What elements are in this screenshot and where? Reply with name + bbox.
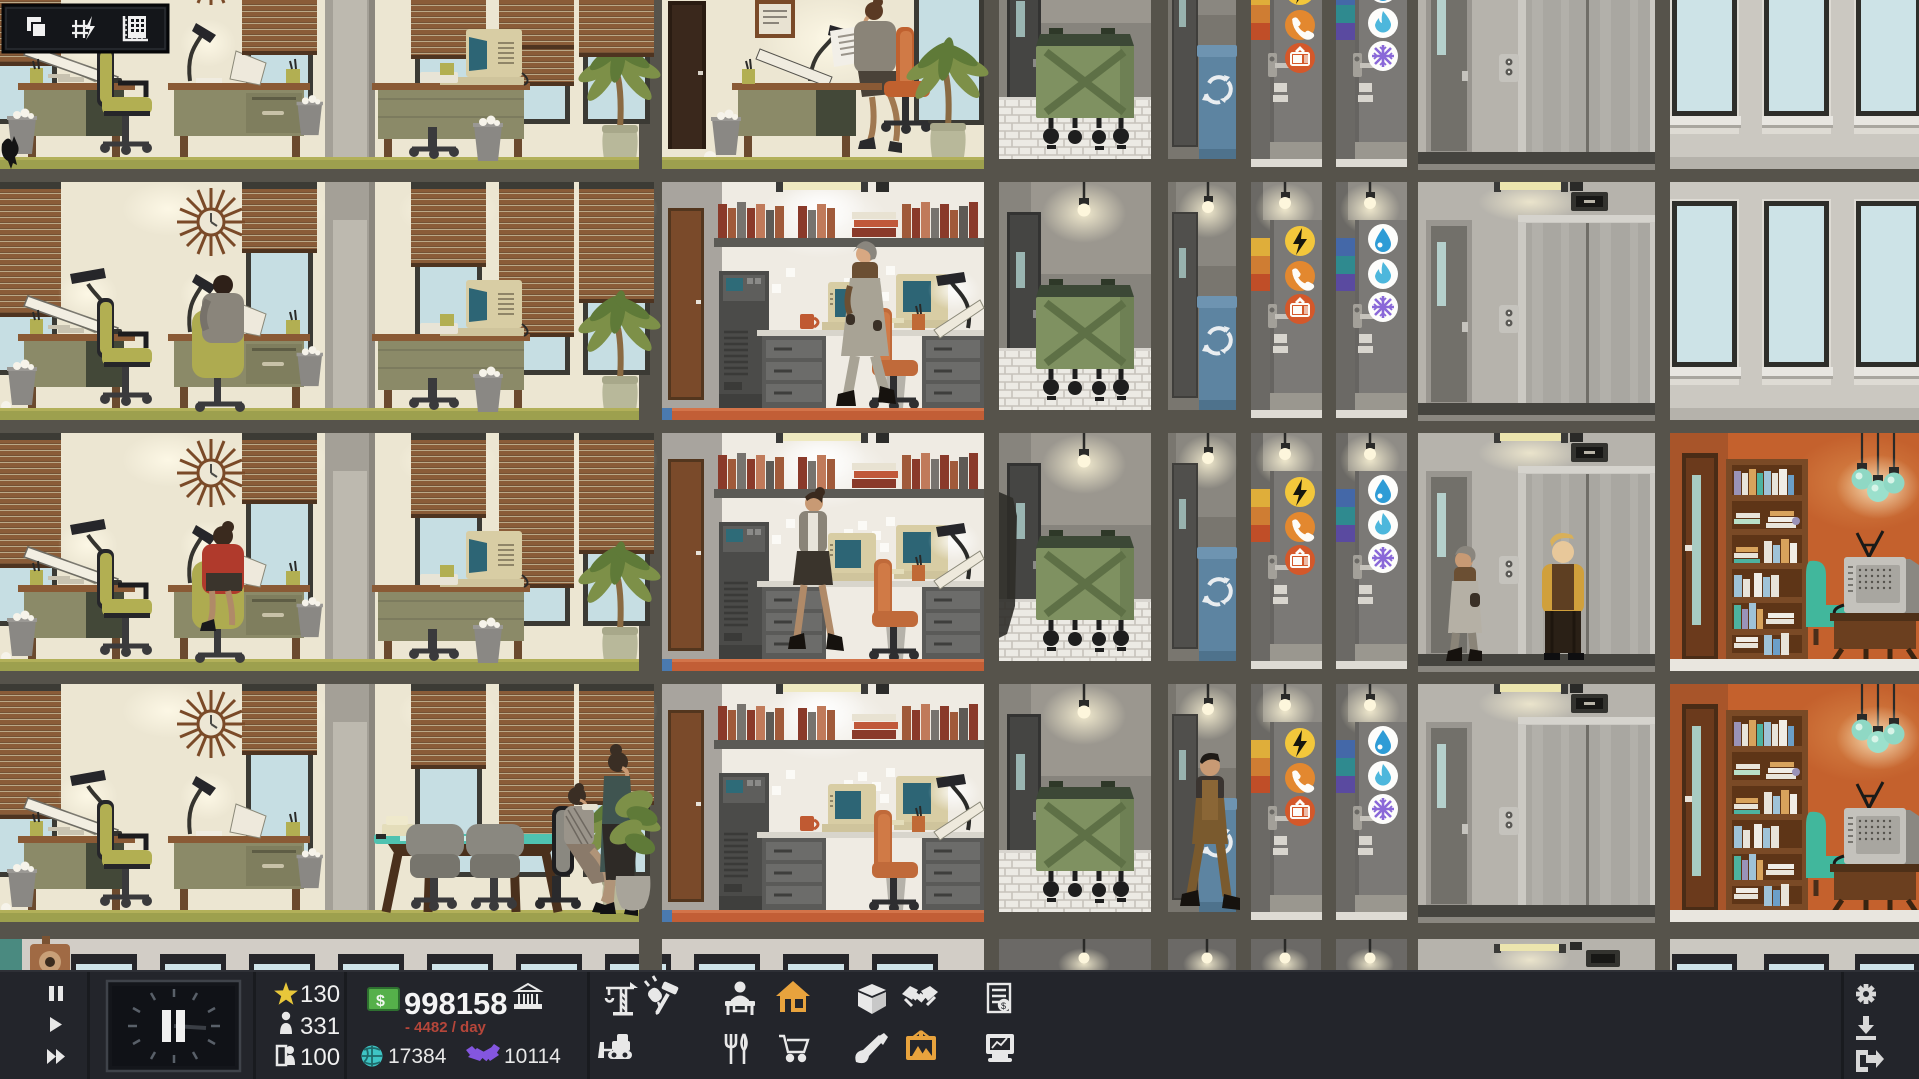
svg-text:- 4482 / day: - 4482 / day (405, 1019, 487, 1036)
svg-text:998158: 998158 (404, 986, 507, 1021)
svg-text:331: 331 (300, 1013, 340, 1040)
svg-text:$: $ (1001, 1001, 1006, 1011)
svg-text:17384: 17384 (388, 1045, 447, 1068)
svg-text:130: 130 (300, 981, 340, 1008)
svg-text:10114: 10114 (504, 1045, 561, 1068)
svg-text:$: $ (376, 993, 385, 1010)
svg-text:100: 100 (300, 1044, 340, 1071)
